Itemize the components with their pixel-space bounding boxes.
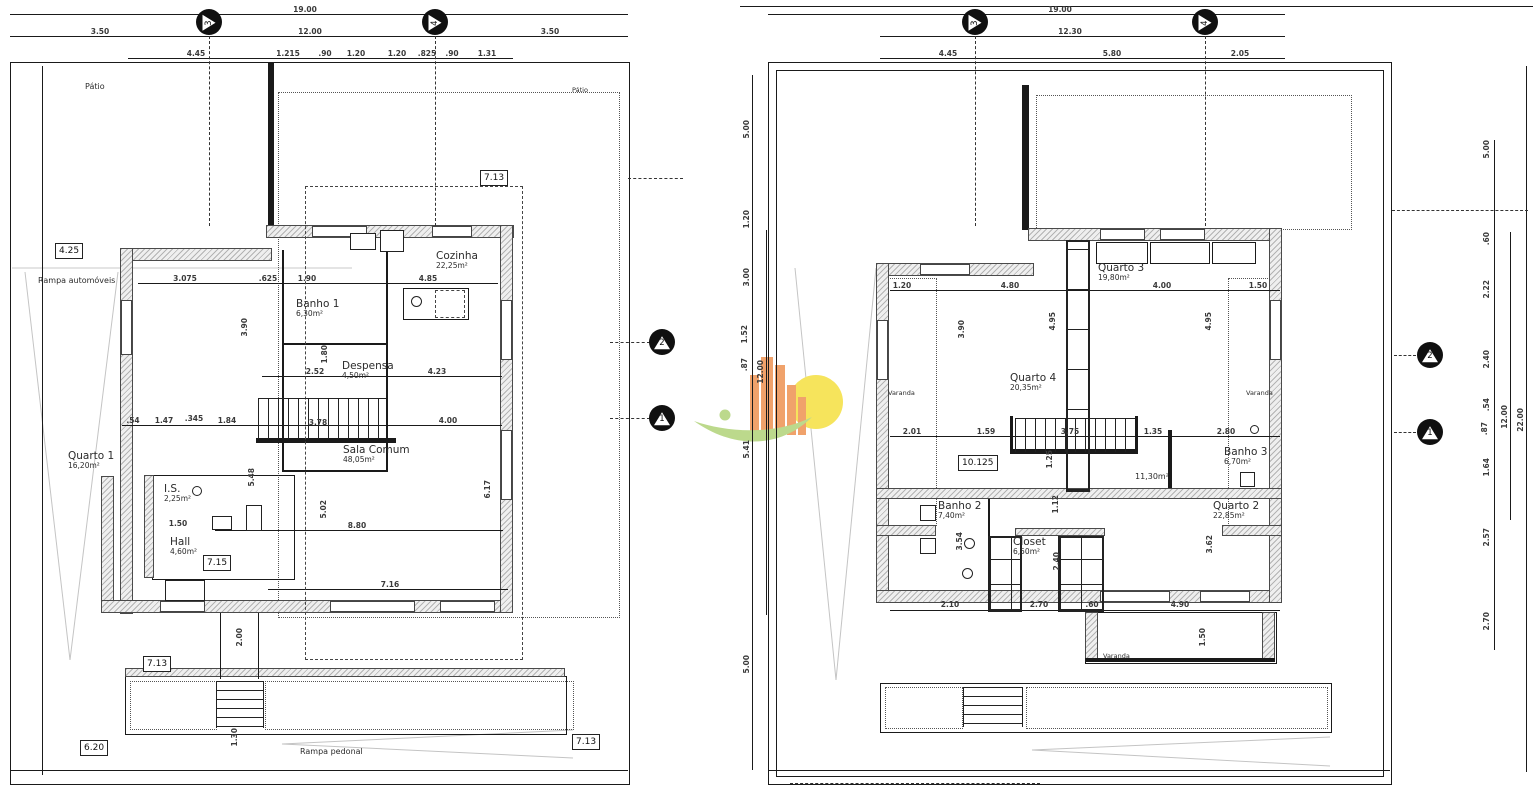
dim: 1.50 bbox=[1249, 281, 1268, 290]
dim: 3.50 bbox=[91, 27, 110, 36]
window bbox=[330, 601, 415, 612]
dim: .87 bbox=[740, 358, 749, 371]
level-label: 4.25 bbox=[55, 243, 83, 259]
dim: 1.47 bbox=[155, 416, 174, 425]
dim-total: 12.00 bbox=[756, 360, 765, 384]
dim: .54 bbox=[126, 416, 139, 425]
left-site-inner-line bbox=[10, 770, 628, 771]
room-quarto4: Quarto 420,35m² bbox=[1010, 372, 1056, 393]
toilet-fixture bbox=[962, 568, 973, 579]
dim: 2.01 bbox=[903, 427, 922, 436]
dim: 4.45 bbox=[187, 49, 206, 58]
level-label: 7.13 bbox=[143, 656, 171, 672]
window bbox=[121, 300, 132, 355]
window bbox=[1100, 591, 1170, 602]
dim: .625 bbox=[259, 274, 278, 283]
terrace-deck bbox=[885, 687, 963, 729]
section-line bbox=[1394, 432, 1416, 433]
dim: 2.70 bbox=[1030, 600, 1049, 609]
sink-fixture bbox=[1240, 472, 1255, 487]
dimension-line bbox=[128, 58, 513, 59]
section-marker-1: 1 bbox=[1417, 419, 1443, 445]
dim: 1.12 bbox=[1051, 495, 1060, 514]
dim: 2.00 bbox=[235, 628, 244, 647]
dim: 3.90 bbox=[240, 318, 249, 337]
dim-total: 22.00 bbox=[1516, 408, 1525, 432]
section-marker-1: 1 bbox=[649, 405, 675, 431]
wall bbox=[1269, 228, 1282, 603]
wall bbox=[101, 476, 114, 613]
dim: 1.20 bbox=[893, 281, 912, 290]
dim: 2.05 bbox=[1231, 49, 1250, 58]
room-cozinha: Cozinha22,25m² bbox=[436, 250, 478, 271]
wall bbox=[120, 248, 272, 261]
cut-line bbox=[209, 36, 210, 226]
window bbox=[1160, 229, 1205, 240]
dim: 4.23 bbox=[428, 367, 447, 376]
dim: .90 bbox=[445, 49, 458, 58]
staircase-side bbox=[1010, 416, 1013, 454]
dim-total: 19.00 bbox=[1048, 5, 1072, 14]
sheet-top-line bbox=[740, 6, 1533, 7]
dim: 12.00 bbox=[298, 27, 322, 36]
level-label: 6.20 bbox=[80, 740, 108, 756]
dim: 5.48 bbox=[247, 468, 256, 487]
dim: 1.90 bbox=[298, 274, 317, 283]
wall bbox=[144, 475, 154, 578]
right-boundary-dash bbox=[790, 783, 1040, 784]
dim: 1.80 bbox=[320, 345, 329, 364]
exterior-steps bbox=[216, 681, 264, 728]
dim: 3.62 bbox=[1205, 535, 1214, 554]
section-line bbox=[610, 342, 650, 343]
dim: 1.52 bbox=[740, 325, 749, 344]
dim: 5.41 bbox=[742, 440, 751, 459]
section-line bbox=[610, 418, 650, 419]
cut-line bbox=[975, 36, 976, 226]
dim: 12.30 bbox=[1058, 27, 1082, 36]
section-line bbox=[1394, 355, 1416, 356]
wardrobe bbox=[1212, 242, 1256, 264]
wall bbox=[1085, 612, 1098, 662]
kitchen-appliance bbox=[380, 230, 404, 252]
wall bbox=[1262, 612, 1275, 662]
window bbox=[501, 300, 512, 360]
window bbox=[1100, 229, 1145, 240]
dim: 2.40 bbox=[1482, 350, 1491, 369]
dim: .825 bbox=[418, 49, 437, 58]
sink-fixture bbox=[920, 538, 936, 554]
floor-plan-sheet: 19.00 3.50 12.00 3.50 4.45 1.215 .90 1.2… bbox=[0, 0, 1533, 803]
dim: .87 bbox=[1480, 422, 1489, 435]
dim: 1.20 bbox=[742, 210, 751, 229]
exterior-steps bbox=[963, 687, 1023, 727]
dim: 4.95 bbox=[1204, 312, 1213, 331]
dimension-line bbox=[880, 36, 1285, 37]
right-site-inner-line bbox=[768, 770, 1390, 771]
circulation-area-label: 11,30m² bbox=[1135, 472, 1169, 481]
dim: 4.00 bbox=[1153, 281, 1172, 290]
rampa-automoveis-label: Rampa automóveis bbox=[38, 276, 115, 285]
dim: 2.40 bbox=[1052, 552, 1061, 571]
cut-line bbox=[1205, 36, 1206, 226]
sink-fixture bbox=[212, 516, 232, 530]
dim: .90 bbox=[318, 49, 331, 58]
window bbox=[501, 430, 512, 500]
room-hall: Hall4,60m² bbox=[170, 536, 197, 557]
dim: 1.25 bbox=[1045, 450, 1054, 469]
room-banho1: Banho 16,30m² bbox=[296, 298, 339, 319]
dim: 3.54 bbox=[955, 532, 964, 551]
dimension-line bbox=[1526, 66, 1527, 772]
dim: 2.22 bbox=[1482, 280, 1491, 299]
terrace-edge-wall bbox=[125, 668, 565, 677]
dim: .345 bbox=[185, 414, 204, 423]
room-quarto3: Quarto 319,80m² bbox=[1098, 262, 1144, 283]
right-boundary-dash bbox=[1392, 210, 1528, 211]
dim: 3.75 bbox=[1061, 427, 1080, 436]
wardrobe bbox=[1096, 242, 1148, 264]
dim: 8.80 bbox=[348, 521, 367, 530]
dim: 1.215 bbox=[276, 49, 300, 58]
window bbox=[1200, 591, 1250, 602]
kitchen-appliance bbox=[350, 233, 376, 250]
window bbox=[877, 320, 888, 380]
dim: 1.31 bbox=[478, 49, 497, 58]
room-closet: Closet6,50m² bbox=[1013, 536, 1046, 557]
terrace-deck bbox=[130, 681, 217, 730]
wall bbox=[1015, 528, 1105, 536]
toilet-fixture bbox=[1250, 425, 1259, 434]
kitchen-island-dashed bbox=[435, 290, 465, 318]
dim: 3.00 bbox=[742, 268, 751, 287]
dim: 4.45 bbox=[939, 49, 958, 58]
left-site-side-line bbox=[42, 66, 43, 775]
dim: 2.57 bbox=[1482, 528, 1491, 547]
wardrobe bbox=[1150, 242, 1210, 264]
room-banho3: Banho 36,70m² bbox=[1224, 446, 1267, 467]
window bbox=[432, 226, 472, 237]
dim: .60 bbox=[1085, 600, 1098, 609]
dimension-line bbox=[10, 14, 628, 15]
cut-marker-4: 4 bbox=[1192, 9, 1218, 35]
window bbox=[920, 264, 970, 275]
dimension-line bbox=[1494, 140, 1495, 650]
wall bbox=[1222, 525, 1282, 536]
dim: 6.17 bbox=[483, 480, 492, 499]
level-label: 10.125 bbox=[958, 455, 998, 471]
dim: 3.78 bbox=[309, 418, 328, 427]
right-patio-divider-wall bbox=[1022, 85, 1029, 230]
toilet-fixture bbox=[964, 538, 975, 549]
dim: 1.84 bbox=[218, 416, 237, 425]
shower-fixture bbox=[246, 505, 262, 531]
cooktop-icon bbox=[411, 296, 422, 307]
dim: .54 bbox=[1482, 398, 1491, 411]
dim: 3.90 bbox=[957, 320, 966, 339]
dimension-line bbox=[752, 75, 753, 770]
entry-walkway-line bbox=[258, 613, 259, 679]
dimension-line bbox=[766, 230, 767, 615]
dim: 2.10 bbox=[941, 600, 960, 609]
cut-line bbox=[435, 36, 436, 226]
dim: 1.50 bbox=[1198, 628, 1207, 647]
dim: 1.59 bbox=[977, 427, 996, 436]
dim-total: 19.00 bbox=[293, 5, 317, 14]
leaf-dot-icon bbox=[720, 410, 731, 421]
room-quarto2: Quarto 222,85m² bbox=[1213, 500, 1259, 521]
dim: 4.90 bbox=[1171, 600, 1190, 609]
room-sala-comum: Sala Comum48,05m² bbox=[343, 444, 410, 465]
wall bbox=[876, 525, 936, 536]
wardrobe-column bbox=[1066, 240, 1090, 492]
patio-label: Pátio bbox=[572, 86, 588, 94]
dim: 4.95 bbox=[1048, 312, 1057, 331]
dim: 2.52 bbox=[306, 367, 325, 376]
section-marker-2: 2 bbox=[1417, 342, 1443, 368]
entry-mat bbox=[165, 580, 205, 601]
dim: 4.80 bbox=[1001, 281, 1020, 290]
dim: 1.50 bbox=[169, 519, 188, 528]
room-quarto1: Quarto 116,20m² bbox=[68, 450, 114, 471]
cut-marker-4: 4 bbox=[422, 9, 448, 35]
entry-walkway-line bbox=[220, 613, 221, 679]
room-despensa: Despensa4,50m² bbox=[342, 360, 394, 381]
rampa-pedonal-label: Rampa pedonal bbox=[300, 747, 363, 756]
dim: 3.50 bbox=[541, 27, 560, 36]
dim: 7.16 bbox=[381, 580, 400, 589]
patio-label: Pátio bbox=[85, 82, 105, 91]
dim: 5.00 bbox=[742, 655, 751, 674]
dim-total: 12.00 bbox=[1500, 405, 1509, 429]
dim: 1.20 bbox=[388, 49, 407, 58]
dim: 1.30 bbox=[230, 728, 239, 747]
section-marker-2: 2 bbox=[649, 329, 675, 355]
window bbox=[440, 601, 495, 612]
varanda-label: Varanda bbox=[1103, 652, 1130, 660]
left-patio-divider-wall bbox=[268, 63, 274, 229]
terrace-deck bbox=[265, 681, 574, 730]
left-boundary-dash-continuation bbox=[628, 178, 683, 179]
level-label: 7.15 bbox=[203, 555, 231, 571]
dim: 5.80 bbox=[1103, 49, 1122, 58]
level-label: 7.13 bbox=[480, 170, 508, 186]
dim: 4.85 bbox=[419, 274, 438, 283]
dim: .60 bbox=[1482, 232, 1491, 245]
dimension-line bbox=[1510, 232, 1511, 520]
room-banho2: Banho 27,40m² bbox=[938, 500, 981, 521]
dim: 1.35 bbox=[1144, 427, 1163, 436]
dim: 4.00 bbox=[439, 416, 458, 425]
dim: 1.20 bbox=[347, 49, 366, 58]
dimension-line bbox=[880, 58, 1285, 59]
staircase-side bbox=[1135, 416, 1138, 454]
cut-marker-3: 3 bbox=[962, 9, 988, 35]
cut-marker-3: 3 bbox=[196, 9, 222, 35]
dim: 5.02 bbox=[319, 500, 328, 519]
level-label: 7.13 bbox=[572, 734, 600, 750]
dim: 5.00 bbox=[1482, 140, 1491, 159]
terrace-deck bbox=[1026, 687, 1328, 729]
sink-fixture bbox=[920, 505, 936, 521]
dim: 5.00 bbox=[742, 120, 751, 139]
window bbox=[1270, 300, 1281, 360]
varanda-label: Varanda bbox=[888, 389, 915, 397]
dim: 2.70 bbox=[1482, 612, 1491, 631]
dim: 1.64 bbox=[1482, 458, 1491, 477]
varanda-label: Varanda bbox=[1246, 389, 1273, 397]
window bbox=[160, 601, 205, 612]
toilet-fixture bbox=[192, 486, 202, 496]
right-patio-dotted-boundary bbox=[1036, 95, 1352, 230]
room-is: I.S.2,25m² bbox=[164, 483, 191, 504]
wall bbox=[876, 263, 889, 603]
dim: 2.80 bbox=[1217, 427, 1236, 436]
dim: 3.075 bbox=[173, 274, 197, 283]
dimension-line bbox=[10, 36, 628, 37]
